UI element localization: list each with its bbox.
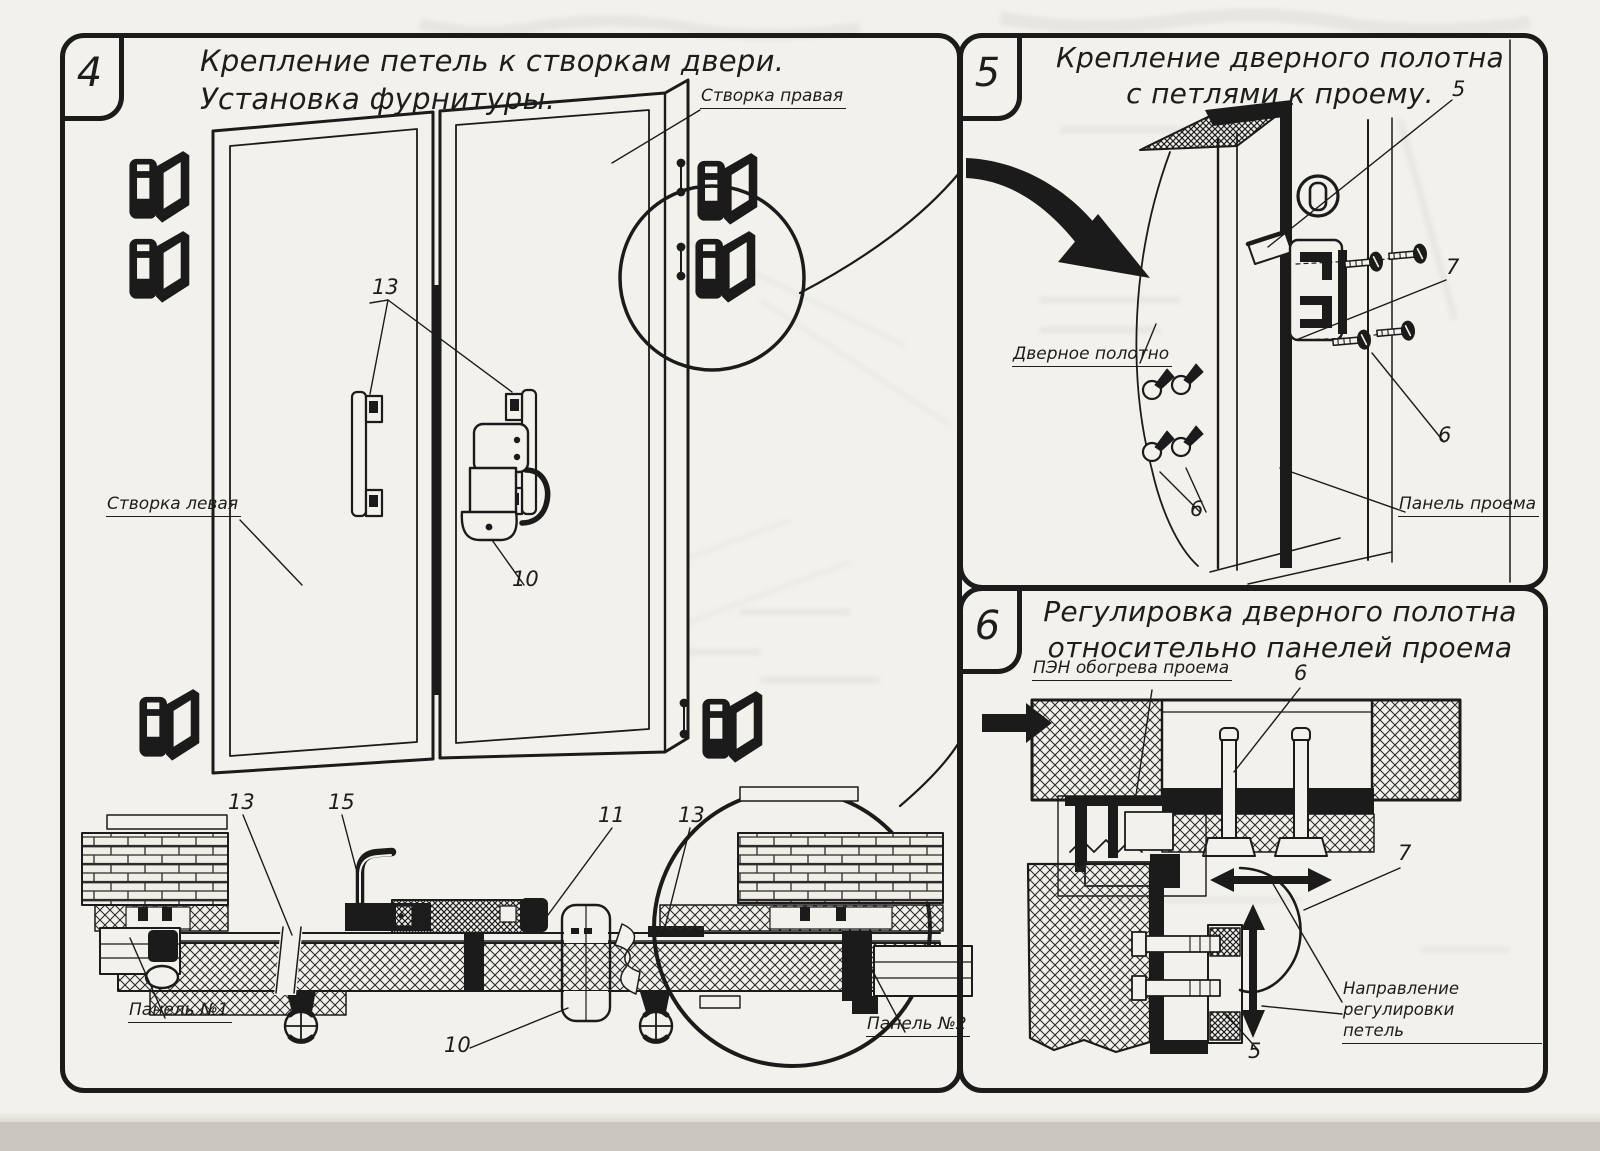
label-heater: ПЭН обогрева проема xyxy=(1032,658,1232,681)
panel6-title-line1: Регулировка дверного полотна xyxy=(1030,594,1530,630)
panel4-title: Крепление петель к створкам двери. Устан… xyxy=(200,42,784,118)
callout-10-latch: 10 xyxy=(512,568,539,590)
callout-13-section-right: 13 xyxy=(678,804,705,826)
label-adjust-direction-line2: петель xyxy=(1343,1020,1539,1041)
step-badge-4: 4 xyxy=(64,37,124,121)
callout-15-section: 15 xyxy=(328,791,355,813)
label-panel-1: Панель №1 xyxy=(128,1000,232,1023)
callout-5-hinge-bottom: 5 xyxy=(1248,1040,1261,1062)
scanner-strip xyxy=(0,1122,1600,1151)
callout-13-section-left: 13 xyxy=(228,791,255,813)
callout-6-screws-right: 6 xyxy=(1438,424,1451,446)
callout-5-hinge: 5 xyxy=(1452,78,1465,100)
callout-13-handles: 13 xyxy=(372,276,399,298)
scanned-instruction-page: 4 5 6 Крепление петель к створкам двери.… xyxy=(0,0,1600,1151)
callout-6-screws-left: 6 xyxy=(1190,498,1203,520)
page-edge-shadow xyxy=(0,1112,1600,1122)
panel6-title: Регулировка дверного полотна относительн… xyxy=(1030,594,1530,666)
callout-11-section: 11 xyxy=(598,804,625,826)
step-number: 5 xyxy=(975,53,1000,93)
step-number: 4 xyxy=(77,53,102,93)
step-number: 6 xyxy=(975,606,1000,646)
label-door-leaf: Дверное полотно xyxy=(1012,344,1172,367)
label-adjust-direction: Направление регулировки петель xyxy=(1342,978,1542,1044)
step-badge-5: 5 xyxy=(962,37,1022,121)
panel4-title-line1: Крепление петель к створкам двери. xyxy=(200,42,784,80)
label-left-leaf: Створка левая xyxy=(106,494,241,517)
callout-7-hinge-arm: 7 xyxy=(1398,842,1411,864)
callout-10-section: 10 xyxy=(444,1034,471,1056)
callout-7-bracket: 7 xyxy=(1446,256,1459,278)
label-panel-2: Панель №2 xyxy=(866,1014,970,1037)
panel4-title-line2: Установка фурнитуры. xyxy=(200,80,784,118)
label-opening-panel: Панель проема xyxy=(1398,494,1539,517)
callout-6-bolt: 6 xyxy=(1294,662,1307,684)
step-badge-6: 6 xyxy=(962,590,1022,674)
label-adjust-direction-line1: Направление регулировки xyxy=(1343,978,1539,1020)
panel5-title: Крепление дверного полотна с петлями к п… xyxy=(1030,40,1530,112)
panel5-title-line1: Крепление дверного полотна xyxy=(1030,40,1530,76)
label-right-leaf: Створка правая xyxy=(700,86,846,109)
panel-4-frame xyxy=(60,33,962,1093)
